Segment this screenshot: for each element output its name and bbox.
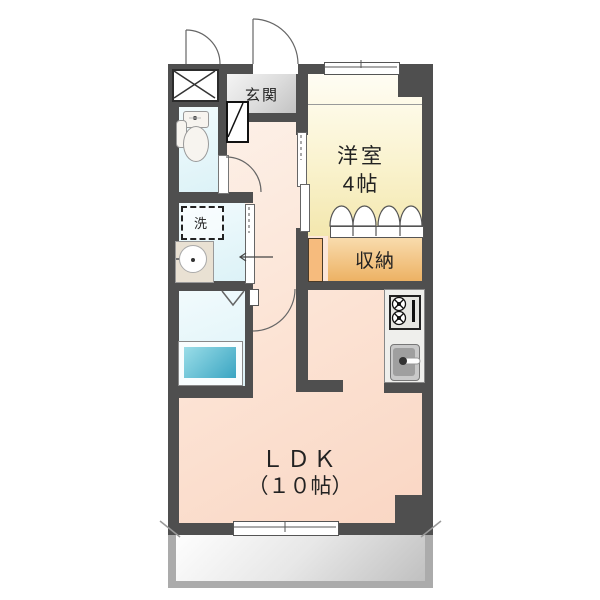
shoe-cabinet-icon — [226, 101, 249, 143]
western-window-icon — [324, 62, 400, 75]
toilet-door-opening — [218, 155, 229, 194]
wall-under-shaft — [168, 102, 218, 107]
entrance-door-arc-icon — [253, 19, 298, 64]
sink-basin — [393, 348, 415, 376]
western-sliding-door — [297, 132, 307, 187]
ldk-door-leaf — [249, 289, 259, 306]
wall-under-bath — [168, 386, 253, 398]
floorplan: 玄関 洋室 4帖 収納 洗 ＬＤＫ （１０帖） — [0, 0, 600, 600]
washbasin-counter — [175, 241, 214, 283]
toilet-bowl-icon — [183, 126, 209, 162]
western-sliding-door-panel — [300, 184, 310, 232]
bathtub-water — [184, 347, 236, 378]
laundry-area — [181, 206, 224, 240]
wall-kitchen-south-left — [296, 380, 343, 392]
balcony-floor — [176, 535, 425, 581]
closet-column — [308, 238, 323, 282]
wall-bottomright-block — [395, 495, 433, 523]
wall-toilet-washroom — [168, 192, 253, 203]
washroom-sliding-door — [245, 204, 255, 284]
entrance-opening — [253, 64, 298, 74]
room-storage — [328, 236, 422, 281]
wall-western-upper — [296, 64, 308, 135]
grill-bar — [412, 300, 415, 322]
beam-line — [300, 104, 422, 105]
meterbox-door-arc-icon — [186, 30, 220, 64]
pipe-space-icon — [172, 69, 219, 102]
wall-kitchen-left — [296, 288, 308, 392]
wall-step-topright — [398, 64, 433, 97]
stove-icon — [389, 295, 421, 330]
closet-door-base — [330, 226, 424, 238]
room-western — [300, 74, 422, 236]
ldk-window-icon — [233, 521, 339, 536]
